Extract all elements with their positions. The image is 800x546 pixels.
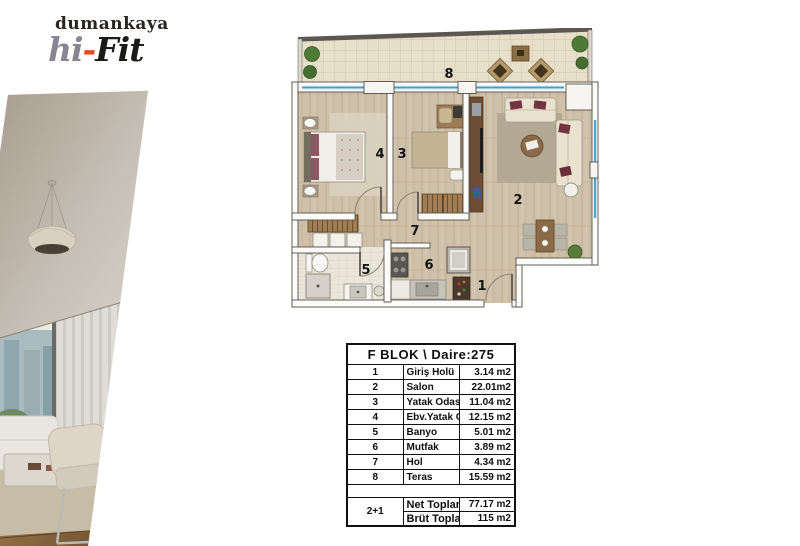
floor-plan-drawing: 8 <box>290 28 600 330</box>
row-name: Mutfak <box>403 440 459 455</box>
room-label-hol: 7 <box>410 224 419 239</box>
room-label-mutfak: 6 <box>424 258 433 273</box>
row-area: 5.01 m2 <box>459 425 515 440</box>
table-row: 4 Ebv.Yatak Odası 12.15 m2 <box>347 410 515 425</box>
row-num: 1 <box>347 365 403 380</box>
brand-logo: dumankaya hi-Fit <box>48 14 208 65</box>
dining-set <box>523 220 567 252</box>
room-label-giris: 1 <box>477 279 486 294</box>
product-name: hi-Fit <box>48 35 208 65</box>
net-total-value: 77.17 m2 <box>459 498 515 512</box>
row-area: 11.04 m2 <box>459 395 515 410</box>
room-label-yatak: 3 <box>397 147 406 162</box>
table-row: 2 Salon 22.01m2 <box>347 380 515 395</box>
apartment-spec: F BLOK \ Daire:275 1 Giriş Holü 3.14 m2 … <box>346 343 516 527</box>
row-name: Hol <box>403 455 459 470</box>
summary-row-net: 2+1 Net Toplam 77.17 m2 <box>347 498 515 512</box>
net-total-label: Net Toplam <box>403 498 459 512</box>
row-num: 4 <box>347 410 403 425</box>
flyer-page: dumankaya hi-Fit <box>0 0 800 546</box>
row-num: 3 <box>347 395 403 410</box>
corner-column <box>566 84 592 110</box>
interior-photo-scene <box>0 88 150 546</box>
room-label-salon: 2 <box>513 193 522 208</box>
brut-total-label: Brüt Toplam <box>403 512 459 527</box>
row-area: 3.89 m2 <box>459 440 515 455</box>
row-name: Salon <box>403 380 459 395</box>
table-row: 5 Banyo 5.01 m2 <box>347 425 515 440</box>
table-row: 1 Giriş Holü 3.14 m2 <box>347 365 515 380</box>
interior-photo <box>0 88 150 546</box>
table-row: 6 Mutfak 3.89 m2 <box>347 440 515 455</box>
table-row: 7 Hol 4.34 m2 <box>347 455 515 470</box>
table-spacer-row <box>347 485 515 498</box>
product-name-dash: - <box>83 30 96 69</box>
floor-plan: 8 <box>290 28 600 330</box>
row-area: 15.59 m2 <box>459 470 515 485</box>
room-label-ebv-yatak: 4 <box>375 147 384 162</box>
row-name: Yatak Odası <box>403 395 459 410</box>
row-area: 4.34 m2 <box>459 455 515 470</box>
row-name: Teras <box>403 470 459 485</box>
row-num: 7 <box>347 455 403 470</box>
floor-lamp <box>564 183 578 197</box>
room-label-banyo: 5 <box>361 263 370 278</box>
spec-table: F BLOK \ Daire:275 1 Giriş Holü 3.14 m2 … <box>346 343 516 527</box>
row-num: 6 <box>347 440 403 455</box>
row-num: 8 <box>347 470 403 485</box>
row-name: Giriş Holü <box>403 365 459 380</box>
room-label-teras: 8 <box>444 67 453 82</box>
row-name: Ebv.Yatak Odası <box>403 410 459 425</box>
row-area: 22.01m2 <box>459 380 515 395</box>
terrace-table <box>512 46 529 61</box>
row-name: Banyo <box>403 425 459 440</box>
row-area: 12.15 m2 <box>459 410 515 425</box>
brut-total-value: 115 m2 <box>459 512 515 527</box>
row-num: 5 <box>347 425 403 440</box>
product-name-suffix: Fit <box>95 30 143 69</box>
table-row: 3 Yatak Odası 11.04 m2 <box>347 395 515 410</box>
table-row: 8 Teras 15.59 m2 <box>347 470 515 485</box>
sofa-right <box>556 120 582 186</box>
photo-ceiling <box>0 88 150 338</box>
spec-table-header: F BLOK \ Daire:275 <box>347 344 515 365</box>
apartment-type: 2+1 <box>347 498 403 527</box>
sofa-top <box>505 98 556 122</box>
terrace-area: 8 <box>298 28 592 85</box>
salon-plant <box>568 245 582 259</box>
product-name-prefix: hi <box>48 30 83 69</box>
row-area: 3.14 m2 <box>459 365 515 380</box>
row-num: 2 <box>347 380 403 395</box>
